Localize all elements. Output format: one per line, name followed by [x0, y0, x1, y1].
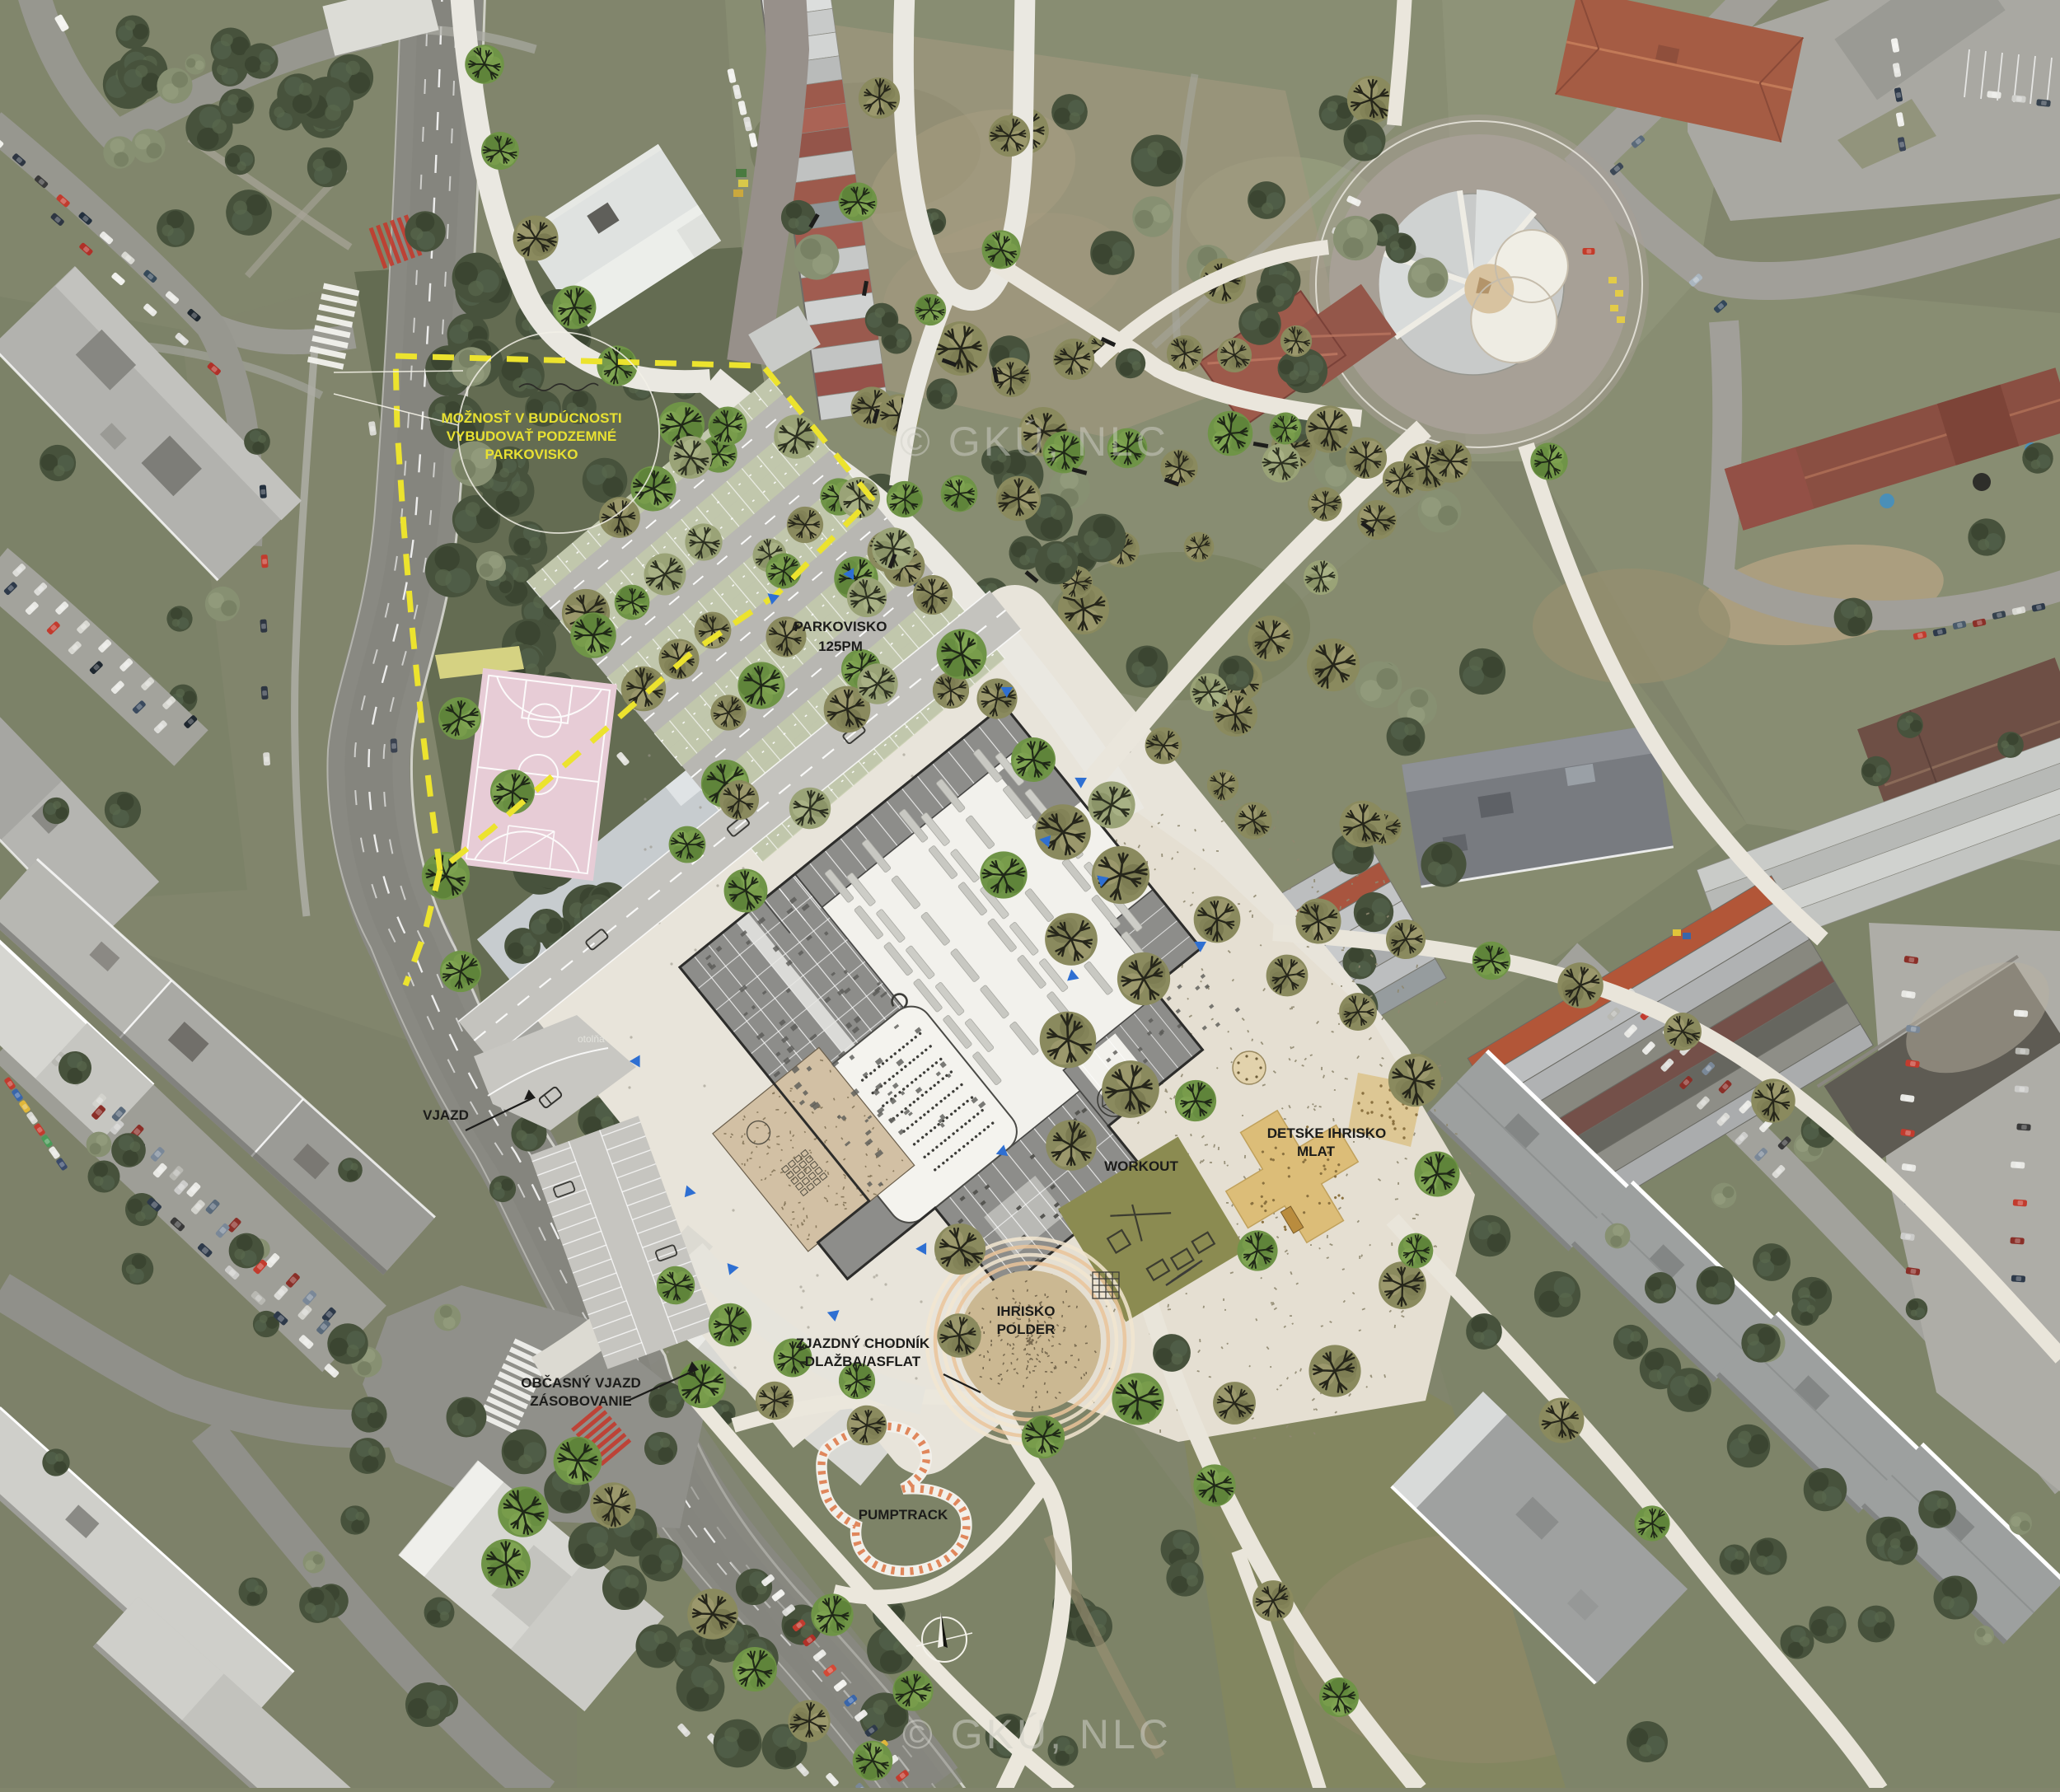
svg-text:PARKOVISKO: PARKOVISKO	[794, 619, 887, 634]
svg-text:MLAT: MLAT	[1297, 1144, 1336, 1159]
svg-text:OBČASNÝ VJAZD: OBČASNÝ VJAZD	[521, 1375, 640, 1391]
svg-text:IHRISKO: IHRISKO	[997, 1303, 1056, 1319]
svg-text:DETSKE IHRISKO: DETSKE IHRISKO	[1267, 1125, 1387, 1141]
svg-text:VYBUDOVAŤ PODZEMNÉ: VYBUDOVAŤ PODZEMNÉ	[447, 428, 617, 444]
svg-text:VJAZD: VJAZD	[423, 1107, 469, 1123]
svg-text:WORKOUT: WORKOUT	[1104, 1158, 1178, 1174]
svg-text:125PM: 125PM	[818, 639, 863, 654]
svg-text:© GKÚ, NLC: © GKÚ, NLC	[902, 1711, 1172, 1757]
svg-text:PARKOVISKO: PARKOVISKO	[485, 447, 578, 462]
svg-text:POLDER: POLDER	[997, 1322, 1056, 1337]
svg-text:MOŽNOSŤ V BUDÚCNOSTI: MOŽNOSŤ V BUDÚCNOSTI	[441, 410, 621, 426]
svg-text:ZÁSOBOVANIE: ZÁSOBOVANIE	[530, 1393, 631, 1409]
svg-text:© GKÚ, NLC: © GKÚ, NLC	[900, 419, 1169, 465]
svg-text:PUMPTRACK: PUMPTRACK	[859, 1507, 948, 1523]
svg-text:DLAŽBA/ASFLAT: DLAŽBA/ASFLAT	[805, 1354, 921, 1369]
svg-text:otolňa: otolňa	[578, 1033, 605, 1045]
svg-text:ZJAZDNÝ CHODNÍK: ZJAZDNÝ CHODNÍK	[796, 1336, 930, 1351]
